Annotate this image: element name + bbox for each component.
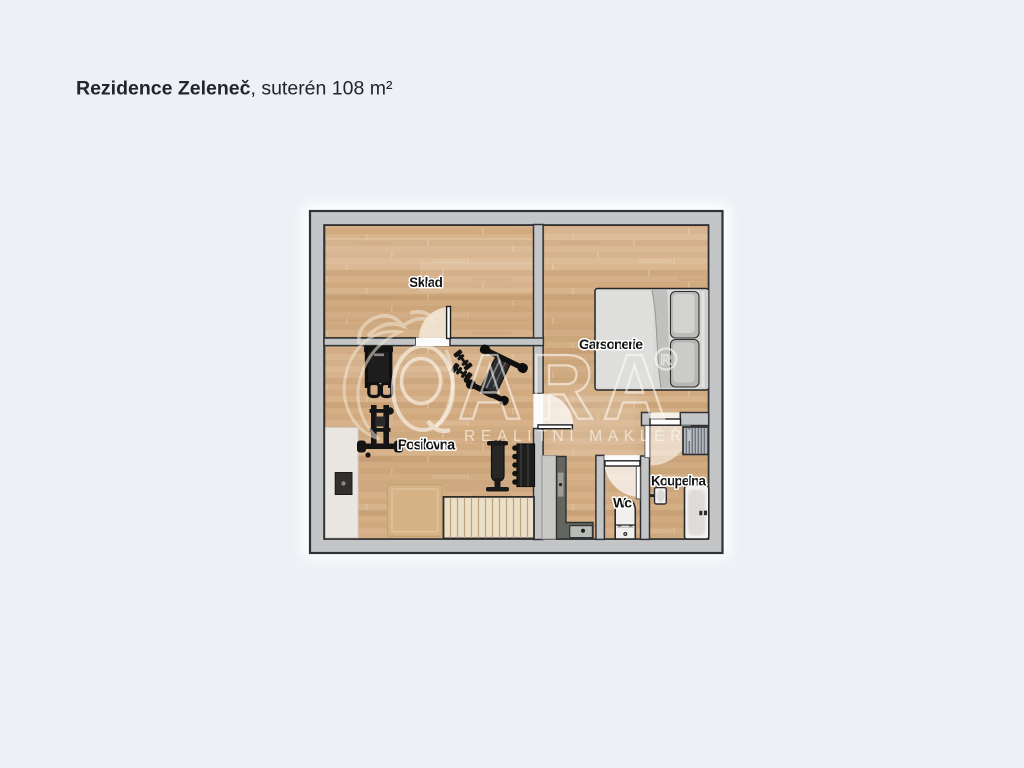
svg-text:Koupelna: Koupelna: [651, 474, 706, 489]
svg-text:Rezidence Zeleneč, suterén 108: Rezidence Zeleneč, suterén 108 m²: [76, 78, 393, 100]
svg-text:R: R: [661, 352, 672, 369]
svg-text:REALITNÍ MAKLÉŘI: REALITNÍ MAKLÉŘI: [464, 428, 697, 445]
svg-text:Wc: Wc: [613, 495, 632, 511]
svg-text:Posilovna: Posilovna: [398, 437, 456, 453]
svg-text:ARA: ARA: [458, 335, 675, 439]
svg-text:Sklad: Sklad: [409, 275, 443, 290]
